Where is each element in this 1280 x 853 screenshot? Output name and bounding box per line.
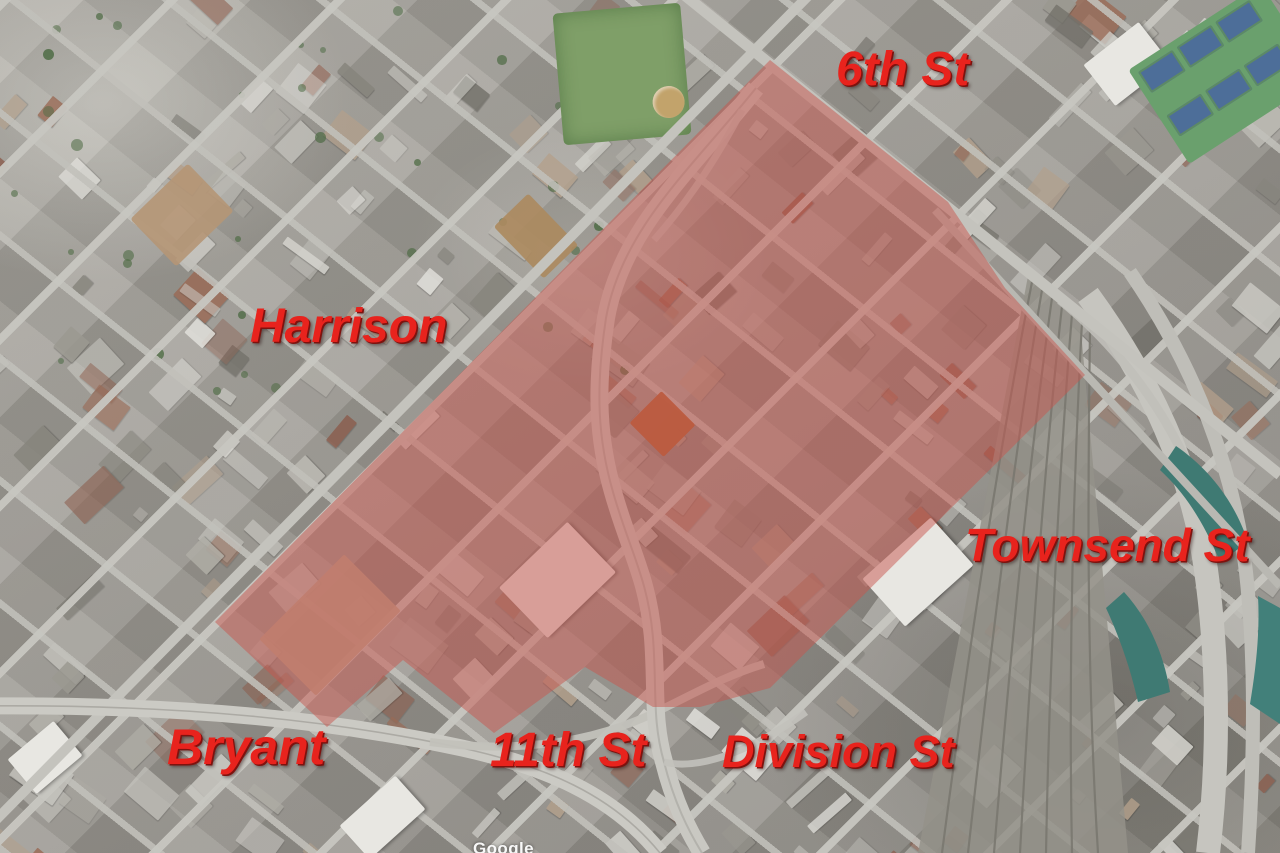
street-label-6th-st: 6th St [836,46,969,94]
street-label-11th-st: 11th St [490,727,646,775]
street-label-bryant: Bryant [167,722,325,772]
street-label-harrison: Harrison [250,303,447,351]
street-labels-layer: 6th St Harrison Townsend St Bryant 11th … [0,0,1280,853]
google-watermark: Google [473,839,534,853]
satellite-map-view[interactable]: 6th St Harrison Townsend St Bryant 11th … [0,0,1280,853]
street-label-division-st: Division St [722,729,955,774]
street-label-townsend-st: Townsend St [965,522,1250,568]
